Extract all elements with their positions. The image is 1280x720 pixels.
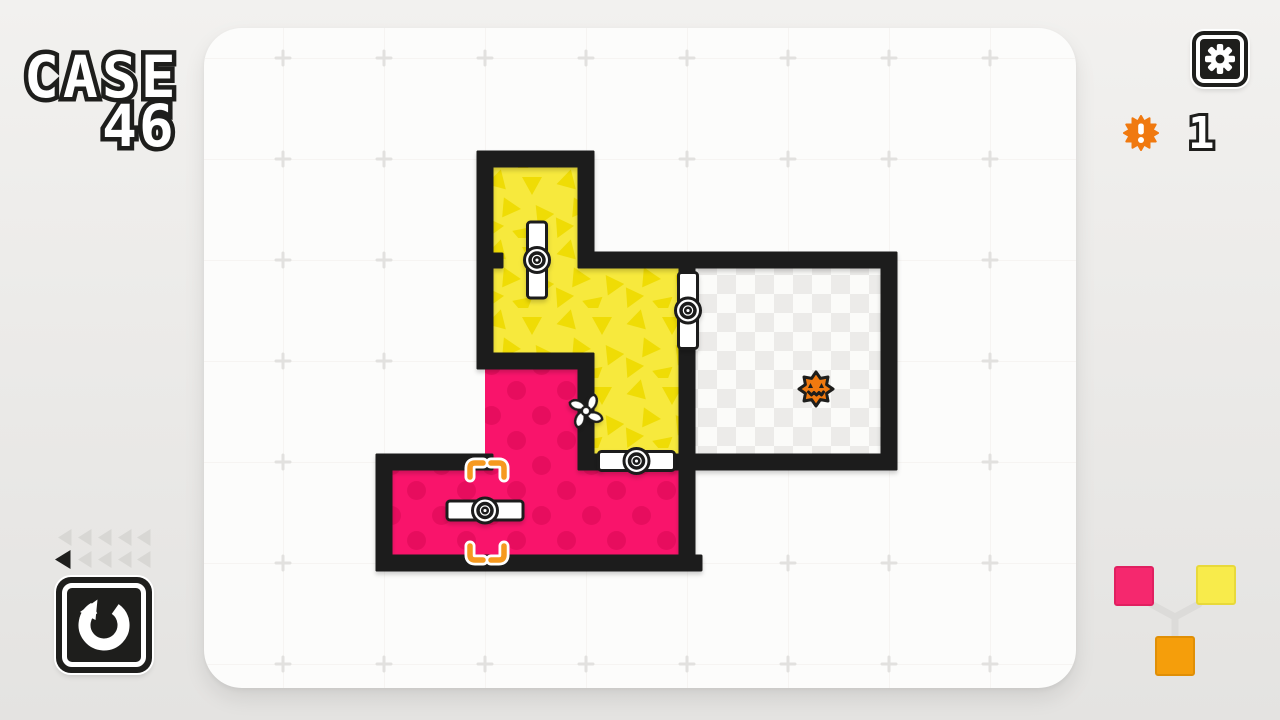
board-panel: [204, 28, 1076, 688]
case-number: 46: [102, 92, 176, 159]
door-right-vertical[interactable]: [676, 273, 701, 349]
gear-icon: [1200, 39, 1240, 79]
color-mix-diagram: [1105, 558, 1245, 683]
unknown-room: [687, 260, 889, 462]
yellow-swatch: [1197, 566, 1235, 604]
settings-button[interactable]: [1192, 31, 1248, 87]
mix-connector: [1151, 604, 1199, 640]
restart-button[interactable]: [56, 577, 152, 673]
active-step-triangle: [55, 550, 71, 569]
level-map: [204, 28, 1076, 688]
game-screen: { "hud": { "case_label": "CASE", "case_n…: [0, 0, 1280, 720]
spiky-alert-icon: [1123, 115, 1159, 151]
suspect-count: 1: [1180, 106, 1224, 158]
pink-swatch: [1115, 567, 1153, 605]
door-middle-horizontal[interactable]: [599, 449, 675, 474]
door-jamb-stub: [492, 254, 502, 267]
orange-swatch: [1156, 637, 1194, 675]
case-title: CASE 46: [16, 44, 211, 159]
door-top-vertical[interactable]: [525, 222, 550, 298]
suspect-enemy: [799, 372, 833, 406]
door-bottom-horizontal[interactable]: [447, 498, 523, 523]
restart-ccw-icon: [73, 594, 135, 656]
undo-steps-indicator: [50, 524, 162, 574]
suspect-count-value: 1: [1188, 108, 1215, 158]
